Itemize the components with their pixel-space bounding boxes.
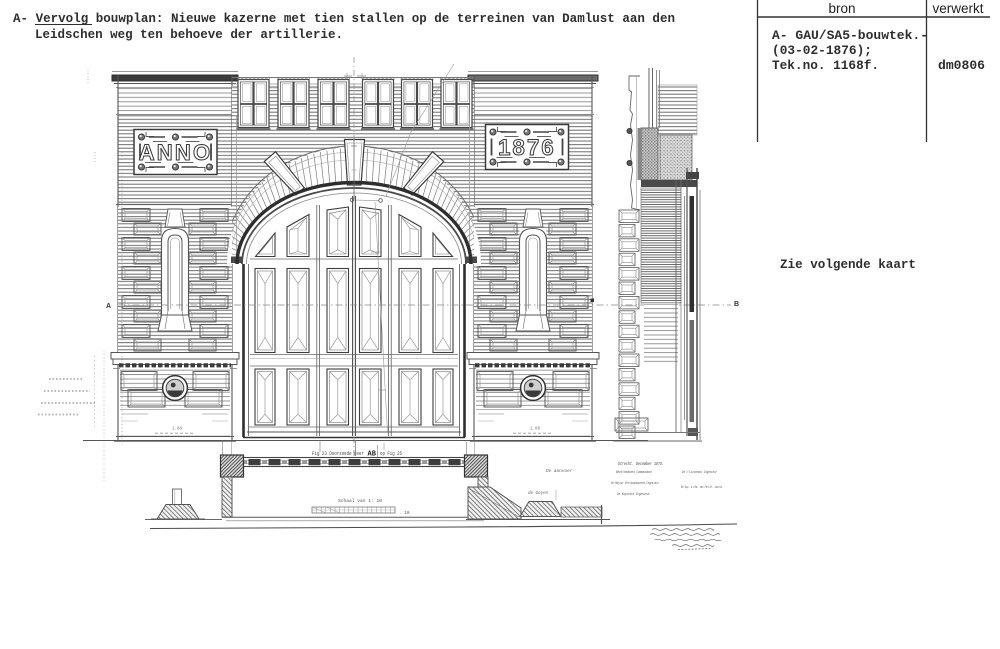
svg-text:A- Vervolg bouwplan: Nieuwe ka: A- Vervolg bouwplan: Nieuwe kazerne met … [13,12,675,26]
svg-text:1876: 1876 [498,135,556,160]
svg-text:B: B [734,301,739,308]
svg-text:op Fig 25: op Fig 25 [380,450,402,457]
svg-text:A- GAU/SA5-bouwtek.-: A- GAU/SA5-bouwtek.- [772,29,928,43]
svg-text:De aanvoer: De aanvoer [546,469,573,474]
svg-text:De Opz. a afd. van Fortif. sui: De Opz. a afd. van Fortif. suivis [681,485,722,490]
svg-text:De Kapitein Ingenieur: De Kapitein Ingenieur [617,492,650,497]
svg-text:bron: bron [828,1,855,16]
svg-text:de Goyen: de Goyen [528,491,549,496]
svg-text:Tek.no. 1168f.: Tek.no. 1168f. [772,59,879,73]
svg-text:1.88: 1.88 [530,428,541,432]
svg-text:Utrecht. December 1875.: Utrecht. December 1875. [618,461,664,467]
svg-text:dm0806: dm0806 [938,59,985,73]
svg-text:De Majoor Eerstaanwezend Ingen: De Majoor Eerstaanwezend Ingenieur [611,481,659,486]
svg-text:A: A [106,303,111,310]
svg-text:Bevelhebbend Commandant: Bevelhebbend Commandant [616,470,652,475]
svg-text:Leidschen weg ten behoeve der: Leidschen weg ten behoeve der artillerie… [35,28,343,42]
svg-text:De t'Luitenant Ingenieur: De t'Luitenant Ingenieur [682,470,717,475]
svg-text:verwerkt: verwerkt [932,1,983,16]
svg-text:1.88: 1.88 [172,428,183,432]
svg-text:ANNO: ANNO [139,140,213,165]
svg-text:(03-02-1876);: (03-02-1876); [772,44,872,58]
svg-text:Schaal van 1: 10: Schaal van 1: 10 [338,498,382,504]
svg-text:Zie volgende kaart: Zie volgende kaart [780,258,916,272]
svg-text:. 10: . 10 [399,511,410,516]
